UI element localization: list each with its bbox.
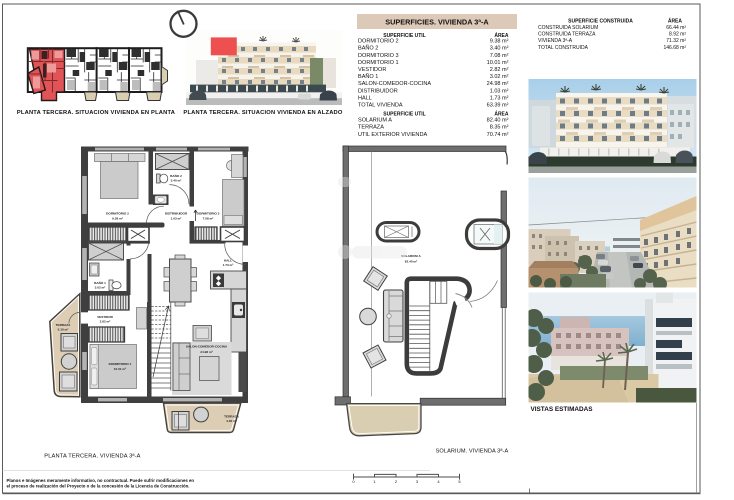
svg-text:TOTAL VIVIENDA: TOTAL VIVIENDA (358, 103, 403, 109)
svg-text:DISTRIBUIDOR: DISTRIBUIDOR (165, 212, 188, 216)
svg-text:TERRAZA: TERRAZA (224, 415, 240, 419)
svg-text:10.01 m²: 10.01 m² (114, 367, 126, 371)
svg-text:DORMITORIO 2: DORMITORIO 2 (358, 39, 399, 45)
svg-text:TERRAZA: TERRAZA (56, 323, 72, 327)
svg-text:7.08 m²: 7.08 m² (203, 217, 214, 221)
svg-text:SALON-COMEDOR-COCINA: SALON-COMEDOR-COCINA (186, 345, 228, 349)
svg-text:63.39 m²: 63.39 m² (487, 103, 509, 109)
svg-text:3.02 m²: 3.02 m² (95, 286, 106, 290)
svg-text:9.38 m²: 9.38 m² (490, 39, 509, 45)
svg-text:1.73 m²: 1.73 m² (223, 263, 234, 267)
svg-text:el proceso de realización del: el proceso de realización del Proyecto o… (7, 483, 190, 488)
svg-text:DORMITORIO 3: DORMITORIO 3 (358, 53, 399, 59)
svg-text:2.82 m²: 2.82 m² (100, 320, 111, 324)
svg-text:VISTAS ESTIMADAS: VISTAS ESTIMADAS (531, 406, 594, 413)
svg-text:DORMITORIO 1: DORMITORIO 1 (358, 60, 399, 66)
svg-text:2.82 m²: 2.82 m² (490, 67, 509, 73)
svg-text:DORMITORIO 3: DORMITORIO 3 (197, 212, 220, 216)
svg-text:3.40 m²: 3.40 m² (490, 46, 509, 52)
svg-text:PLANTA TERCERA. VIVIENDA 3ª-A: PLANTA TERCERA. VIVIENDA 3ª-A (44, 453, 140, 460)
svg-text:1.03 m²: 1.03 m² (171, 217, 182, 221)
svg-text:HALL: HALL (358, 95, 372, 101)
svg-text:SOLARIUM A: SOLARIUM A (358, 118, 392, 124)
svg-text:SOLARIUM. VIVIENDA 3ª-A: SOLARIUM. VIVIENDA 3ª-A (436, 447, 509, 454)
svg-text:DORMITORIO 2: DORMITORIO 2 (106, 212, 129, 216)
svg-text:TERRAZA: TERRAZA (358, 125, 384, 131)
svg-text:SUPERFICIES. VIVIENDA 3ª-A: SUPERFICIES. VIVIENDA 3ª-A (385, 18, 489, 27)
svg-text:HALL: HALL (224, 259, 232, 263)
svg-text:CONSTRUIDA TERRAZA: CONSTRUIDA TERRAZA (538, 32, 596, 38)
svg-text:TOTAL CONSTRUIDA: TOTAL CONSTRUIDA (538, 45, 589, 51)
svg-text:VIVIENDA 3ª-A: VIVIENDA 3ª-A (538, 38, 573, 44)
svg-text:7.08 m²: 7.08 m² (490, 53, 509, 59)
svg-text:UTIL EXTERIOR VIVIENDA: UTIL EXTERIOR VIVIENDA (358, 132, 427, 138)
svg-text:SUPERFICIE UTIL: SUPERFICIE UTIL (383, 111, 426, 117)
svg-text:146.68 m²: 146.68 m² (663, 45, 686, 51)
svg-text:CONSTRUIDA SOLARIUM: CONSTRUIDA SOLARIUM (538, 25, 598, 31)
svg-text:ÁREA: ÁREA (668, 17, 683, 24)
svg-text:10.01 m²: 10.01 m² (487, 60, 509, 66)
svg-text:3.40 m²: 3.40 m² (171, 179, 182, 183)
svg-text:VESTIDOR: VESTIDOR (97, 315, 114, 319)
svg-text:ÁREA: ÁREA (494, 110, 509, 117)
svg-text:BAÑO 1: BAÑO 1 (94, 280, 106, 285)
svg-text:DISTRIBUIDOR: DISTRIBUIDOR (358, 88, 398, 94)
svg-text:71.32 m²: 71.32 m² (666, 38, 686, 44)
svg-text:BAÑO 2: BAÑO 2 (170, 173, 182, 178)
svg-text:DORMITORIO 1: DORMITORIO 1 (109, 362, 132, 366)
svg-text:SALON-COMEDOR-COCINA: SALON-COMEDOR-COCINA (358, 81, 431, 87)
svg-text:BAÑO 1: BAÑO 1 (358, 73, 378, 80)
svg-text:BAÑO 2: BAÑO 2 (358, 45, 378, 52)
svg-text:24.98 m²: 24.98 m² (487, 81, 509, 87)
svg-text:82.40 m²: 82.40 m² (405, 260, 417, 264)
svg-text:PLANTA TERCERA. SITUACION VIVI: PLANTA TERCERA. SITUACION VIVIENDA EN AL… (183, 110, 342, 116)
svg-text:1.03 m²: 1.03 m² (490, 88, 509, 94)
svg-text:VESTIDOR: VESTIDOR (358, 67, 386, 73)
svg-text:1.73 m²: 1.73 m² (490, 95, 509, 101)
svg-text:PLANTA TERCERA. SITUACION VIVI: PLANTA TERCERA. SITUACION VIVIENDA EN PL… (17, 110, 175, 116)
svg-text:70.74 m²: 70.74 m² (487, 132, 509, 138)
svg-text:9.38 m²: 9.38 m² (112, 217, 123, 221)
svg-text:24.98 m²: 24.98 m² (200, 350, 212, 354)
svg-text:3.02 m²: 3.02 m² (490, 74, 509, 80)
svg-text:Planos e Imágenes meramente in: Planos e Imágenes meramente informativo,… (7, 478, 195, 483)
svg-text:SUPERFICIE CONSTRUIDA: SUPERFICIE CONSTRUIDA (568, 18, 633, 24)
svg-text:66.44 m²: 66.44 m² (666, 25, 686, 31)
svg-text:5.10 m²: 5.10 m² (58, 328, 69, 332)
svg-text:8.92 m²: 8.92 m² (669, 32, 686, 38)
svg-text:4.30 m²: 4.30 m² (226, 419, 237, 423)
svg-text:8.35 m²: 8.35 m² (490, 125, 509, 131)
svg-text:82.40 m²: 82.40 m² (487, 118, 509, 124)
